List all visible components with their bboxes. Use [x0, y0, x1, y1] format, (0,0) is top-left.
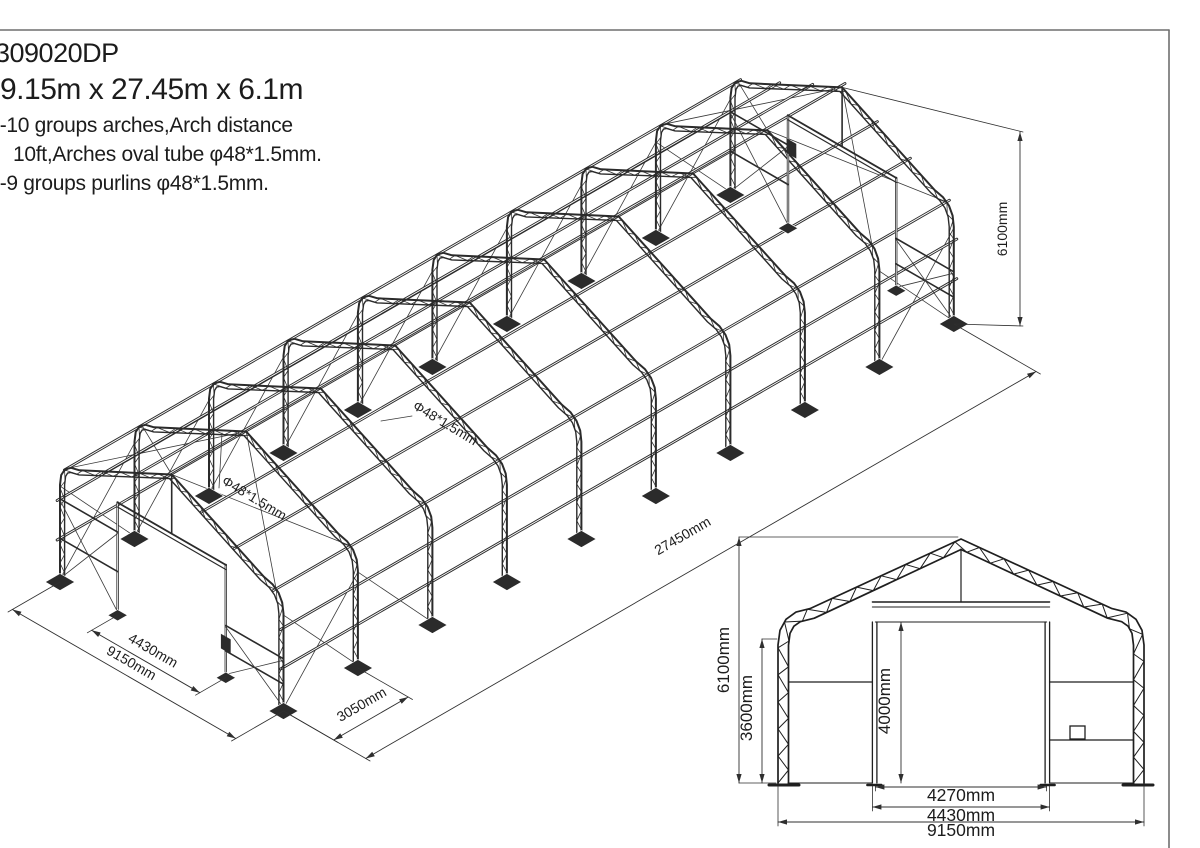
spec-note-tube: 10ft,Arches oval tube φ48*1.5mm.	[13, 143, 360, 167]
dimension-arrow	[759, 774, 764, 783]
truss-outer-chord	[135, 425, 358, 668]
spec-note-purlins: --9 groups purlins φ48*1.5mm.	[0, 172, 360, 196]
dimension-arrow	[1041, 804, 1050, 809]
dimension-arrow	[399, 697, 408, 704]
purlin-tube	[273, 200, 949, 590]
dimension-arrow	[227, 732, 236, 739]
drawing-sheet: 9150mm4430mm3050mm27450mm6100mmΦ48*1.5mm…	[0, 0, 1200, 848]
dimension-arrow	[778, 819, 787, 824]
arch-7	[507, 210, 731, 453]
truss-outer-chord	[656, 124, 880, 367]
dimension-arrow	[759, 639, 764, 648]
arch-6	[432, 253, 656, 496]
base-plate	[716, 445, 745, 462]
truss-lattice	[432, 255, 656, 496]
base-plate	[120, 531, 149, 548]
truss-inner-chord	[214, 386, 428, 625]
truss-lattice	[581, 169, 805, 410]
dimension-arrow	[898, 774, 903, 783]
truss-inner-chord	[139, 429, 353, 668]
base-plate	[492, 574, 521, 591]
truss-inner-chord	[363, 300, 577, 539]
truss-outer-chord	[284, 339, 507, 582]
front-elevation-view: 6100mm3600mm4000mm4270mm4430mm9150mm	[714, 537, 1153, 840]
arch-8	[581, 167, 805, 410]
elev-dim-door-clear-label: 4270mm	[927, 785, 995, 805]
winch-box	[221, 634, 231, 654]
elev-dim-height-label: 6100mm	[714, 627, 733, 693]
front-end-wall	[60, 476, 284, 708]
leader-line	[381, 416, 412, 421]
dimension-arrow	[366, 752, 375, 759]
spec-note-arches: --10 groups arches,Arch distance	[0, 114, 360, 138]
winch-box-outline	[1070, 726, 1085, 739]
dimension-arrow	[736, 774, 741, 783]
truss-lattice	[284, 341, 507, 582]
truss-inner-chord	[437, 257, 651, 496]
base-plate	[865, 359, 894, 376]
wall-diagonal-brace	[226, 627, 284, 708]
base-plate	[418, 617, 447, 634]
truss-inner-chord	[586, 171, 800, 410]
dimension-arrow	[1017, 132, 1022, 141]
wall-girt	[730, 151, 788, 184]
truss-outer-chord	[358, 296, 582, 539]
wall-girt	[226, 626, 284, 659]
base-plate	[567, 531, 596, 548]
dimension-arrow	[898, 622, 903, 631]
truss-outer-chord	[581, 167, 805, 410]
dimension-arrow	[872, 804, 881, 809]
model-number: 309020DP	[0, 38, 360, 69]
purlin-tube	[281, 279, 957, 669]
iso-dim-length-label: 27450mm	[651, 513, 713, 558]
elev-dim-width-label: 9150mm	[927, 820, 995, 840]
wall-diagonal-brace	[60, 500, 118, 612]
base-plate	[641, 488, 670, 505]
truss-lattice	[209, 384, 432, 625]
elev-dim-eave-label: 3600mm	[737, 675, 756, 741]
overall-size: 9.15m x 27.45m x 6.1m	[0, 73, 360, 107]
truss-outer-chord	[432, 253, 656, 496]
dimension-arrow	[1135, 819, 1144, 824]
truss-inner-chord	[661, 128, 875, 367]
dimension-arrow	[1027, 372, 1036, 379]
iso-dim-height-label: 6100mm	[994, 202, 1010, 256]
base-plate	[790, 402, 819, 419]
arch-2	[135, 425, 358, 668]
title-block: 309020DP 9.15m x 27.45m x 6.1m --10 grou…	[0, 38, 360, 196]
iso-dim-bay-label: 3050mm	[334, 684, 389, 725]
arch-4	[284, 339, 507, 582]
arch-9	[656, 124, 880, 367]
truss-inner-chord	[512, 214, 726, 453]
extension-line	[284, 711, 371, 761]
extension-line	[232, 711, 284, 741]
dimension-arrow	[334, 733, 343, 740]
truss-inner-chord	[288, 343, 502, 582]
extension-line	[954, 324, 1041, 374]
dimension-line	[12, 610, 235, 739]
dimension-arrow	[12, 610, 21, 617]
elev-dim-door-height-label: 4000mm	[875, 668, 894, 734]
leader-line	[219, 433, 222, 488]
elevation-interior	[769, 549, 1153, 785]
dimension-arrow	[92, 630, 101, 637]
truss-outer-chord	[507, 210, 731, 453]
extension-line	[8, 582, 60, 612]
dimension-arrow	[1017, 317, 1022, 326]
arch-5	[358, 296, 582, 539]
wall-girt	[60, 538, 118, 571]
truss-lattice	[135, 427, 358, 668]
purlin-tube	[234, 158, 910, 548]
dimension-arrow	[191, 686, 200, 693]
truss-lattice	[358, 298, 582, 539]
truss-lattice	[507, 212, 731, 453]
